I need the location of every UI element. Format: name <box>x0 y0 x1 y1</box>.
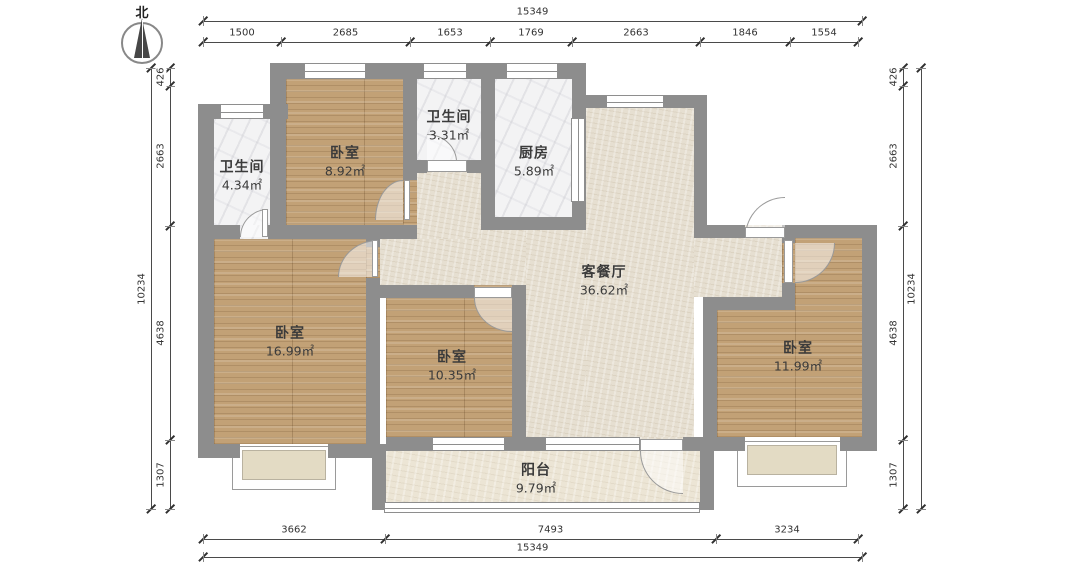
room-name: 卧室 <box>266 325 314 343</box>
dimension-value: 2663 <box>621 28 650 39</box>
door-leaf <box>427 160 467 172</box>
window-mullion <box>546 444 639 445</box>
room-area: 36.62㎡ <box>580 282 628 298</box>
window-mullion <box>305 71 365 72</box>
bay-window <box>242 450 326 480</box>
dimension-extension <box>165 440 175 441</box>
floorplan-canvas: 北 卫生间4.34㎡卧室8.92㎡卫生间3.31㎡厨房5.89㎡客餐厅36.62… <box>0 0 1074 576</box>
dimension-extension <box>165 86 175 87</box>
room-label-living-dining: 客餐厅36.62㎡ <box>580 264 628 297</box>
window <box>304 63 366 79</box>
wall <box>703 310 717 437</box>
room-label-bath-common: 卫生间3.31㎡ <box>427 109 472 142</box>
dimension-line-right-total <box>921 68 922 509</box>
room-name: 客餐厅 <box>580 264 628 282</box>
dimension-extension <box>203 16 204 26</box>
dimension-extension <box>490 37 491 47</box>
room-label-bedroom-north: 卧室8.92㎡ <box>325 145 365 178</box>
dimension-value: 15349 <box>515 7 551 18</box>
dimension-line-top-segments <box>203 42 858 43</box>
wall <box>268 225 286 239</box>
window <box>606 95 664 108</box>
dimension-extension <box>572 37 573 47</box>
dimension-value: 10234 <box>907 271 918 307</box>
room-area: 10.35㎡ <box>428 367 476 383</box>
dimension-extension <box>165 68 175 69</box>
dimension-value: 1846 <box>730 28 759 39</box>
wall <box>481 217 586 230</box>
room-name: 卫生间 <box>220 159 265 177</box>
window <box>384 502 700 513</box>
dimension-extension <box>203 37 204 47</box>
room-label-bath-master: 卫生间4.34㎡ <box>220 159 265 192</box>
room-label-bedroom-master: 卧室16.99㎡ <box>266 325 314 358</box>
wall <box>403 79 417 180</box>
dimension-extension <box>858 534 859 544</box>
door-leaf <box>784 240 793 283</box>
wall <box>700 451 714 510</box>
door-leaf <box>474 287 512 298</box>
dimension-value: 15349 <box>515 543 551 554</box>
window-mullion <box>385 508 699 509</box>
dimension-extension <box>862 16 863 26</box>
dimension-line-bottom-total <box>203 557 862 558</box>
dimension-extension <box>916 509 926 510</box>
dimension-extension <box>410 37 411 47</box>
wall <box>694 225 745 238</box>
room-area: 9.79㎡ <box>516 480 556 496</box>
window <box>571 118 585 202</box>
dimension-extension <box>700 37 701 47</box>
floor-living-dining <box>481 230 526 285</box>
room-label-balcony: 阳台9.79㎡ <box>516 462 556 495</box>
dimension-value: 10234 <box>137 271 148 307</box>
dimension-line-left-total <box>151 68 152 509</box>
wall <box>286 225 417 239</box>
floor-living-dining <box>417 173 481 239</box>
room-area: 8.92㎡ <box>325 163 365 179</box>
room-label-bedroom-east: 卧室11.99㎡ <box>774 340 822 373</box>
window-mullion <box>507 71 557 72</box>
dimension-value: 4638 <box>156 318 167 347</box>
dimension-extension <box>281 37 282 47</box>
room-name: 卫生间 <box>427 109 472 127</box>
window-mullion <box>578 119 579 201</box>
dimension-value: 2685 <box>331 28 360 39</box>
window <box>220 104 264 119</box>
dimension-extension <box>146 509 156 510</box>
door-leaf <box>372 240 378 277</box>
dimension-extension <box>898 68 908 69</box>
dimension-extension <box>858 37 859 47</box>
dimension-extension <box>898 226 908 227</box>
dimension-value: 1307 <box>156 460 167 489</box>
wall <box>366 278 380 444</box>
dimension-line-right-segments <box>903 68 904 509</box>
dimension-line-left-segments <box>170 68 171 509</box>
wall <box>417 160 427 173</box>
dimension-extension <box>916 68 926 69</box>
room-area: 5.89㎡ <box>514 163 554 179</box>
dimension-value: 7493 <box>536 525 565 536</box>
room-label-bedroom-middle: 卧室10.35㎡ <box>428 349 476 382</box>
door-leaf <box>745 227 785 238</box>
window-mullion <box>433 444 504 445</box>
dimension-extension <box>146 68 156 69</box>
dimension-value: 1653 <box>435 28 464 39</box>
window-mullion <box>221 112 263 113</box>
wall <box>214 225 240 239</box>
window <box>506 63 558 79</box>
window <box>423 63 467 79</box>
dimension-extension <box>165 509 175 510</box>
dimension-extension <box>165 226 175 227</box>
room-label-kitchen: 厨房5.89㎡ <box>514 145 554 178</box>
wall <box>198 104 214 458</box>
wall <box>862 225 877 451</box>
dimension-extension <box>790 37 791 47</box>
dimension-line-top-total <box>203 21 862 22</box>
dimension-value: 1769 <box>516 28 545 39</box>
floor-living-dining <box>526 230 586 437</box>
window <box>432 437 505 451</box>
room-name: 卧室 <box>774 340 822 358</box>
room-area: 16.99㎡ <box>266 343 314 359</box>
wall <box>694 95 707 238</box>
wall <box>481 79 495 230</box>
room-area: 4.34㎡ <box>220 177 265 193</box>
dimension-extension <box>898 509 908 510</box>
room-name: 厨房 <box>514 145 554 163</box>
door-leaf <box>262 209 268 237</box>
dimension-value: 1500 <box>227 28 256 39</box>
wall <box>703 437 745 451</box>
dimension-extension <box>716 534 717 544</box>
dimension-value: 3662 <box>279 525 308 536</box>
dimension-extension <box>203 552 204 562</box>
dimension-value: 2663 <box>889 141 900 170</box>
dimension-value: 3234 <box>772 525 801 536</box>
floor-living-dining <box>380 239 481 285</box>
dimension-extension <box>898 440 908 441</box>
window-mullion <box>424 71 466 72</box>
dimension-extension <box>385 534 386 544</box>
wall <box>386 437 432 451</box>
room-name: 卧室 <box>325 145 365 163</box>
floor-plan: 卫生间4.34㎡卧室8.92㎡卫生间3.31㎡厨房5.89㎡客餐厅36.62㎡卧… <box>0 0 1074 576</box>
wall <box>270 63 286 239</box>
room-area: 3.31㎡ <box>427 127 472 143</box>
wall <box>782 283 795 310</box>
dimension-value: 426 <box>156 65 167 88</box>
dimension-value: 4638 <box>889 318 900 347</box>
dimension-line-bottom-segments <box>203 539 858 540</box>
wall <box>512 285 526 437</box>
room-area: 11.99㎡ <box>774 358 822 374</box>
wall <box>505 437 545 451</box>
wall <box>372 444 386 510</box>
floor-living-dining <box>694 238 782 297</box>
dimension-value: 426 <box>889 65 900 88</box>
room-name: 卧室 <box>428 349 476 367</box>
wall <box>366 285 474 298</box>
dimension-extension <box>862 552 863 562</box>
door-leaf <box>640 439 683 451</box>
wall <box>198 444 240 458</box>
bay-window <box>747 445 837 475</box>
dimension-value: 1554 <box>809 28 838 39</box>
window-mullion <box>607 102 663 103</box>
wall <box>840 437 877 451</box>
dimension-extension <box>203 534 204 544</box>
room-name: 阳台 <box>516 462 556 480</box>
dimension-value: 1307 <box>889 460 900 489</box>
window <box>545 437 640 451</box>
dimension-value: 2663 <box>156 141 167 170</box>
dimension-extension <box>898 86 908 87</box>
door-leaf <box>404 180 410 220</box>
